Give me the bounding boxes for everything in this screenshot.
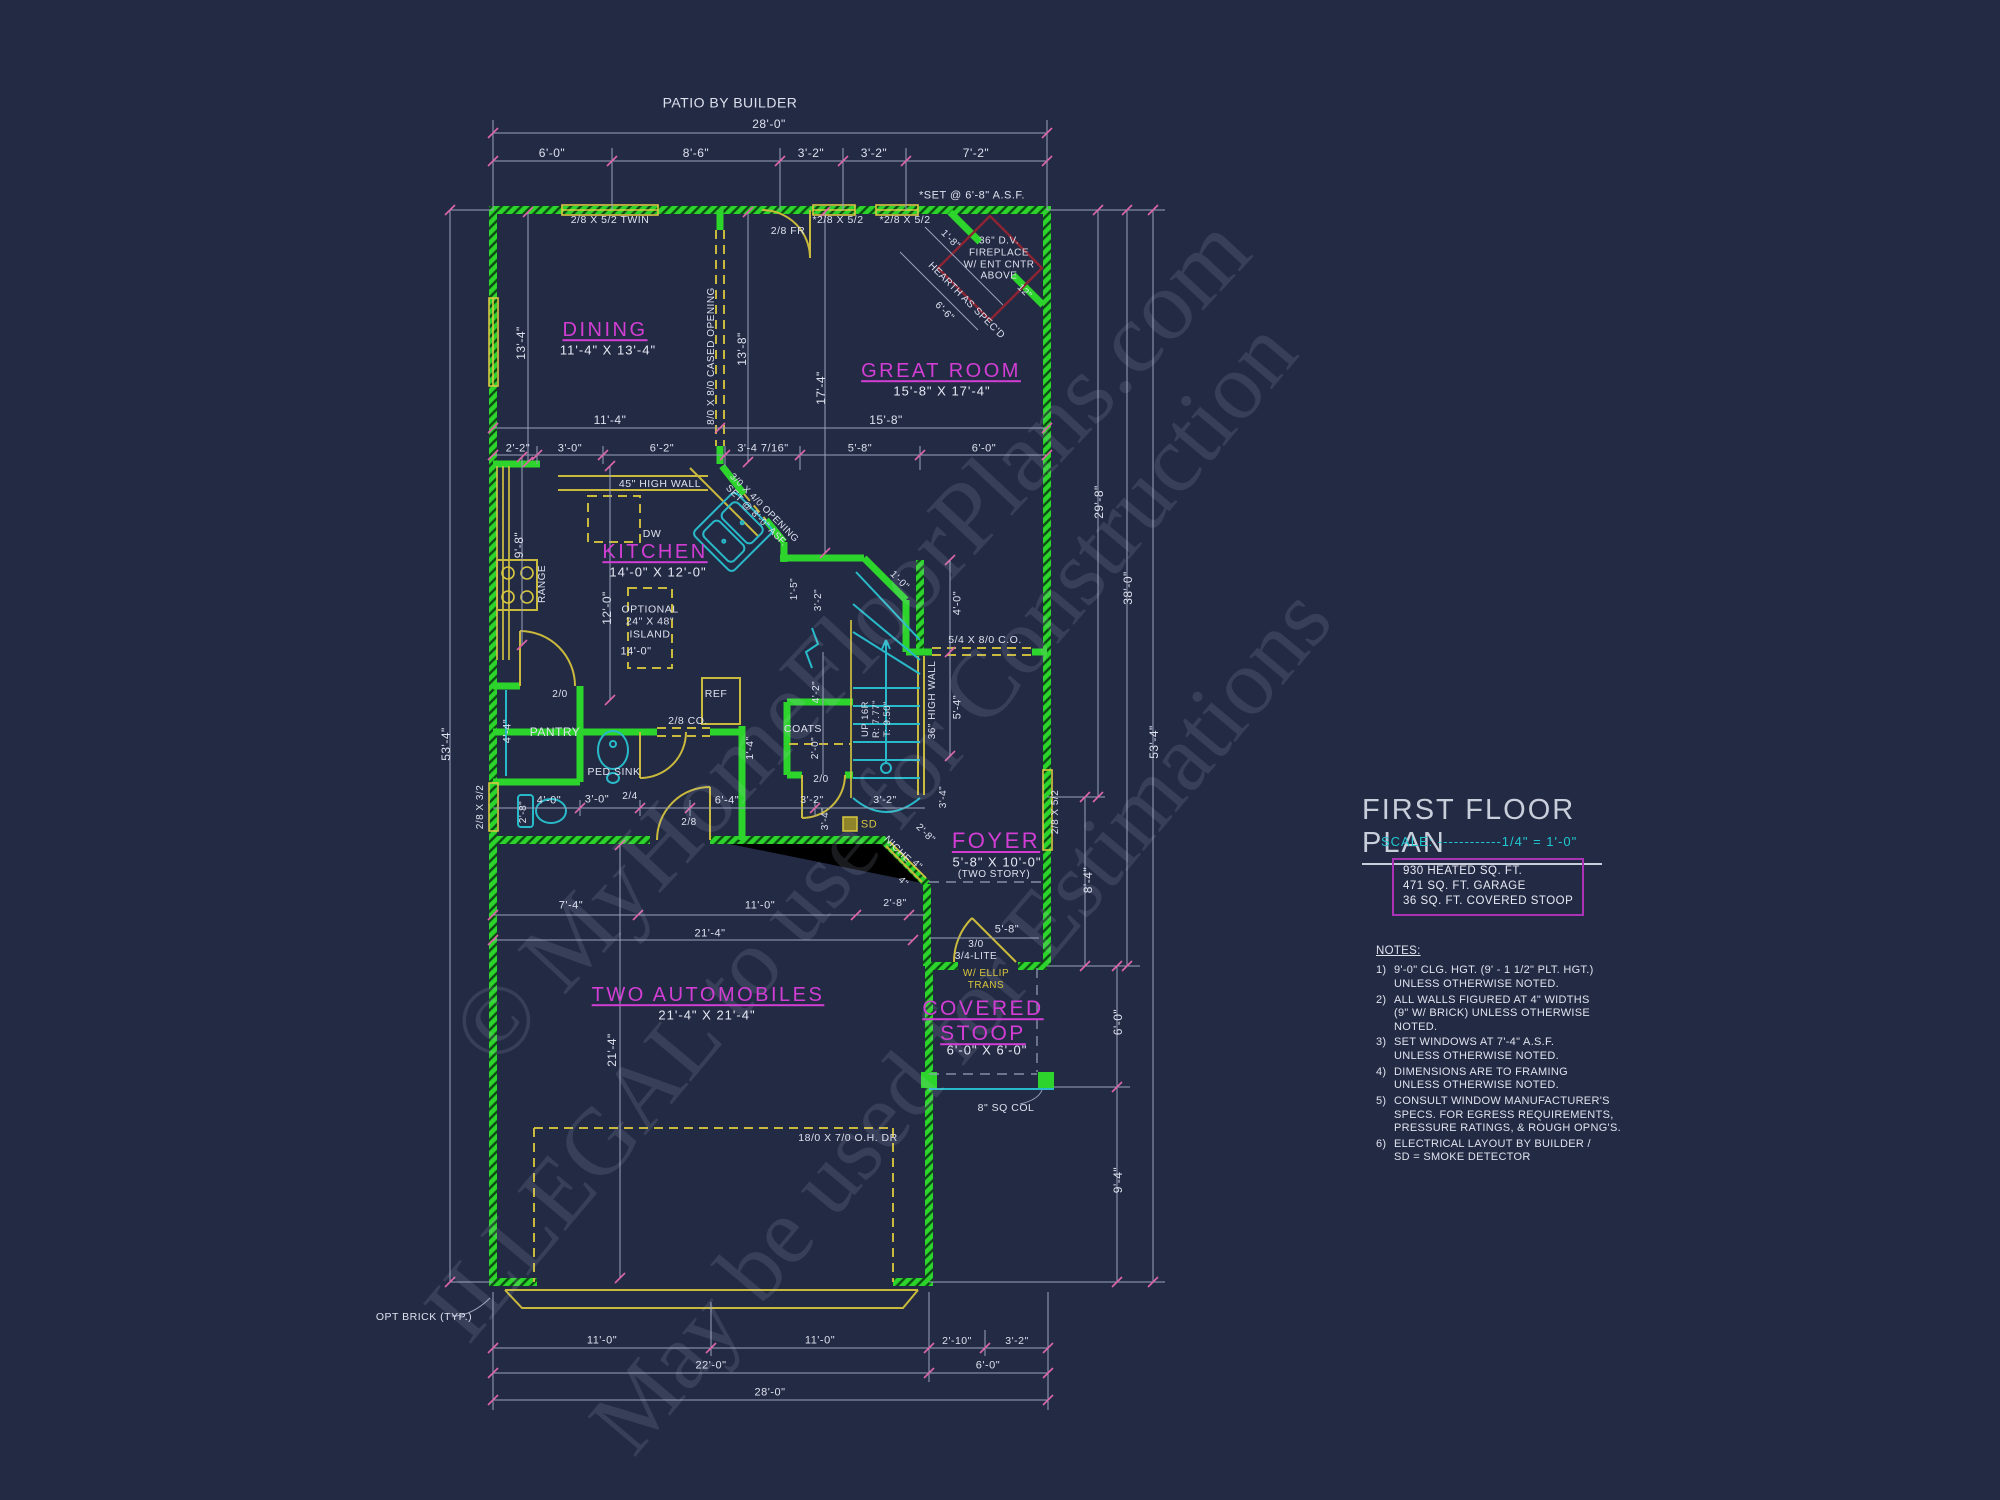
note-item: 5)CONSULT WINDOW MANUFACTURER'S SPECS. F…: [1376, 1095, 1626, 1136]
plan-label: 11'-0": [805, 1335, 835, 1348]
plan-label: 14'-0": [620, 646, 651, 659]
plan-label: 2/8 X 5/2: [1050, 790, 1062, 835]
plan-label: 2'-2": [506, 443, 530, 456]
plan-label: 21'-4" X 21'-4": [658, 1007, 755, 1022]
plan-label: *SET @ 6'-8" A.S.F.: [919, 190, 1025, 203]
plan-label: 5'-4": [952, 695, 965, 719]
plan-label: 6'-4": [715, 795, 739, 808]
plan-label: 53'-4": [439, 727, 453, 761]
plan-label: *2/8 X 5/2: [879, 214, 930, 226]
notes-heading: NOTES:: [1376, 944, 1626, 958]
note-item: 4)DIMENSIONS ARE TO FRAMING UNLESS OTHER…: [1376, 1066, 1626, 1093]
plan-label: 2'-0": [810, 737, 822, 759]
plan-label: 21'-4": [694, 928, 725, 941]
plan-label: 4'-2": [811, 681, 823, 703]
plan-label: 6'-0": [1111, 1009, 1125, 1035]
plan-label: 8" SQ COL: [978, 1102, 1035, 1114]
plan-label: 3'-2": [800, 794, 823, 806]
plan-label: 5'-8" X 10'-0": [953, 854, 1042, 869]
area-line: 471 SQ. FT. GARAGE: [1403, 879, 1573, 894]
plan-scale: SCALE: ------------1/4" = 1'-0": [1381, 834, 1577, 849]
plan-label: 8'-4": [1081, 867, 1095, 893]
plan-label: 9'-8": [512, 532, 526, 558]
note-item: 1)9'-0" CLG. HGT. (9' - 1 1/2" PLT. HGT.…: [1376, 964, 1626, 991]
plan-label: 36" D.V. FIREPLACE W/ ENT CNTR ABOVE: [964, 235, 1035, 282]
plan-label: 11'-0": [745, 900, 775, 913]
plan-label: 29'-8": [1092, 485, 1106, 519]
plan-label: 4'-0": [537, 795, 561, 808]
plan-label: 6'-0": [972, 443, 996, 456]
plan-label: 2'-8": [518, 801, 530, 823]
plan-label: 6'-2": [650, 443, 674, 456]
plan-label: 14'-0" X 12'-0": [609, 564, 706, 579]
plan-label: 2'-10": [942, 1335, 972, 1347]
plan-label: 3'-0": [585, 794, 609, 807]
plan-label: 5'-8": [848, 443, 872, 456]
area-summary-box: 930 HEATED SQ. FT.471 SQ. FT. GARAGE36 S…: [1392, 858, 1584, 916]
plan-label: UP 16R R: 7.77" T: 9.50": [860, 700, 894, 738]
plan-label: 53'-4": [1147, 725, 1161, 759]
plan-label: OPTIONAL 24" X 48" ISLAND: [621, 603, 678, 640]
plan-label: 5/4 X 8/0 C.O.: [948, 634, 1022, 646]
plan-label: 2/8 CO.: [668, 715, 708, 727]
plan-label: 21'-4": [605, 1033, 619, 1067]
plan-label: 2/8 X 5/2 TWIN: [571, 214, 650, 226]
note-item: 2)ALL WALLS FIGURED AT 4" WIDTHS (9" W/ …: [1376, 994, 1626, 1035]
plan-label: RANGE: [537, 565, 549, 603]
plan-label: TWO AUTOMOBILES: [592, 984, 825, 1008]
plan-label: 38'-0": [1121, 571, 1135, 605]
plan-label: REF: [705, 688, 728, 700]
plan-label: 28'-0": [754, 1387, 785, 1400]
plan-label: 3'-4 7/16": [737, 443, 788, 456]
blueprint-canvas: © MyHomeFloorPlans.comILLEGAL to use for…: [0, 0, 2000, 1500]
plan-label: 3/0 3/4-LITE: [955, 939, 997, 963]
plan-label: 28'-0": [752, 117, 786, 131]
plan-label: 2/0: [552, 689, 567, 701]
plan-label: 2'-8": [883, 897, 906, 909]
plan-label: 15'-8": [869, 413, 903, 427]
plan-label: 8'-6": [683, 146, 709, 160]
plan-label: 3'-2": [873, 794, 896, 806]
plan-label: 15'-8" X 17'-4": [893, 383, 990, 398]
note-item: 6)ELECTRICAL LAYOUT BY BUILDER / SD = SM…: [1376, 1138, 1626, 1165]
plan-label: 3'-2": [813, 589, 825, 611]
plan-label: W/ ELLIP TRANS: [963, 968, 1009, 992]
plan-label: 13'-4": [514, 326, 528, 360]
plan-label: 2/8 X 3/2: [475, 785, 487, 830]
plan-label: PANTRY: [530, 725, 581, 739]
plan-label: 6'-0" X 6'-0": [947, 1042, 1028, 1057]
plan-label: 4'-4": [502, 719, 515, 743]
plan-label: COATS: [784, 723, 822, 735]
plan-label: KITCHEN: [602, 541, 707, 565]
plan-label: 7'-2": [963, 146, 989, 160]
plan-label: DINING: [563, 319, 648, 343]
plan-label: 3'-2": [1005, 1335, 1028, 1347]
plan-label: 7'-4": [559, 900, 583, 913]
plan-label: (TWO STORY): [958, 869, 1030, 881]
plan-label: 3'-0": [558, 443, 582, 456]
plan-label: 3'-2": [861, 146, 887, 160]
plan-label: 8/0 X 8/0 CASED OPENING: [706, 287, 718, 425]
plan-label: OPT BRICK (TYP.): [376, 1311, 472, 1323]
plan-label: COVERED STOOP: [922, 997, 1043, 1047]
plan-label: 45" HIGH WALL: [619, 478, 701, 490]
plan-label: 1'-4": [744, 736, 756, 759]
plan-label: 1'-5": [789, 578, 801, 600]
plan-label: DW: [643, 528, 662, 540]
notes-section: NOTES: 1)9'-0" CLG. HGT. (9' - 1 1/2" PL…: [1376, 944, 1626, 1167]
plan-label: PED SINK: [587, 766, 640, 778]
plan-label: 12'-0": [600, 591, 614, 625]
plan-label: 13'-8": [735, 332, 749, 366]
plan-label: 36" HIGH WALL: [927, 661, 939, 740]
plan-label: 18/0 X 7/0 O.H. DR: [798, 1132, 897, 1144]
plan-label: 17'-4": [814, 371, 828, 405]
plan-label: 4'-0": [952, 591, 965, 615]
floor-plan-drawing: [0, 0, 2000, 1500]
plan-label: 6'-0": [976, 1360, 1000, 1373]
plan-label: 2/4: [622, 791, 637, 803]
plan-label: 2/0: [813, 774, 828, 786]
plan-label: *2/8 X 5/2: [812, 214, 863, 226]
plan-label: 22'-0": [695, 1360, 726, 1373]
notes-list: 1)9'-0" CLG. HGT. (9' - 1 1/2" PLT. HGT.…: [1376, 964, 1626, 1165]
plan-label: 3'-2": [798, 146, 824, 160]
plan-label: 9'-4": [1111, 1167, 1125, 1193]
plan-label: SD: [861, 819, 877, 832]
plan-label: FOYER: [952, 828, 1040, 854]
plan-title: FIRST FLOOR PLAN: [1362, 794, 1602, 865]
area-line: 36 SQ. FT. COVERED STOOP: [1403, 894, 1573, 909]
plan-label: 3'-4": [938, 786, 950, 808]
plan-label: GREAT ROOM: [861, 360, 1021, 384]
stoop-post-right: [1038, 1072, 1054, 1088]
plan-label: PATIO BY BUILDER: [663, 95, 798, 112]
plan-label: 11'-4": [594, 413, 627, 427]
plan-label: 6'-0": [539, 146, 565, 160]
plan-label: 2/8 FR: [771, 225, 806, 237]
area-line: 930 HEATED SQ. FT.: [1403, 864, 1573, 879]
plan-label: 3'-4": [820, 808, 832, 830]
plan-label: 11'-4" X 13'-4": [560, 342, 656, 357]
plan-label: 5'-8": [995, 924, 1019, 937]
plan-label: 2/8: [681, 817, 696, 829]
plan-label: 11'-0": [587, 1335, 617, 1348]
note-item: 3)SET WINDOWS AT 7'-4" A.S.F. UNLESS OTH…: [1376, 1036, 1626, 1063]
